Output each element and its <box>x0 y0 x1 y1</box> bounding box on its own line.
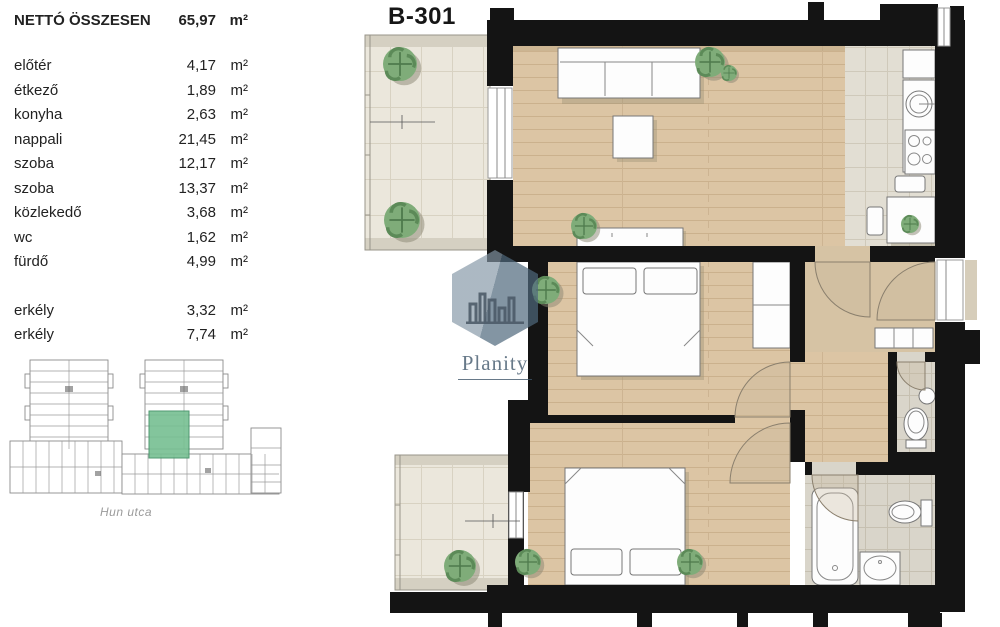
area-table-header: NETTÓ ÖSSZESEN 65,97 m² <box>14 8 248 33</box>
table-row: erkély 3,32 m² <box>14 298 248 323</box>
table-row: étkező 1,89 m² <box>14 78 248 103</box>
table-row: szoba 13,37 m² <box>14 176 248 201</box>
sofa <box>558 48 704 104</box>
hall-cabinet <box>875 328 933 348</box>
bed-middle <box>577 262 704 380</box>
total-value: 65,97 <box>156 12 218 29</box>
bathroom-vanity <box>860 552 900 585</box>
table-row: erkély 7,74 m² <box>14 323 248 348</box>
site-plan: Hun utca <box>5 356 295 526</box>
kitchen-counter <box>903 50 935 174</box>
building-outline <box>10 360 281 494</box>
total-label: NETTÓ ÖSSZESEN <box>14 12 156 29</box>
street-label: Hun utca <box>100 505 152 519</box>
balcony-top-door <box>488 88 512 178</box>
entry-door <box>937 260 963 320</box>
wardrobe <box>753 262 790 348</box>
chair <box>867 207 883 235</box>
chair <box>895 176 925 192</box>
table-row: fürdő 4,99 m² <box>14 250 248 275</box>
area-table: NETTÓ ÖSSZESEN 65,97 m² előtér 4,17 m² é… <box>14 8 248 347</box>
floor-plan-page: NETTÓ ÖSSZESEN 65,97 m² előtér 4,17 m² é… <box>0 0 1000 627</box>
table-row: wc 1,62 m² <box>14 225 248 250</box>
total-unit: m² <box>218 12 248 29</box>
coffee-table <box>613 116 657 162</box>
highlighted-unit <box>149 411 189 458</box>
table-row: szoba 12,17 m² <box>14 152 248 177</box>
bed-bottom <box>565 468 689 589</box>
table-row: előtér 4,17 m² <box>14 54 248 79</box>
table-row: közlekedő 3,68 m² <box>14 201 248 226</box>
table-row: nappali 21,45 m² <box>14 127 248 152</box>
table-row: konyha 2,63 m² <box>14 103 248 128</box>
floor-plan-drawing <box>360 0 1000 627</box>
